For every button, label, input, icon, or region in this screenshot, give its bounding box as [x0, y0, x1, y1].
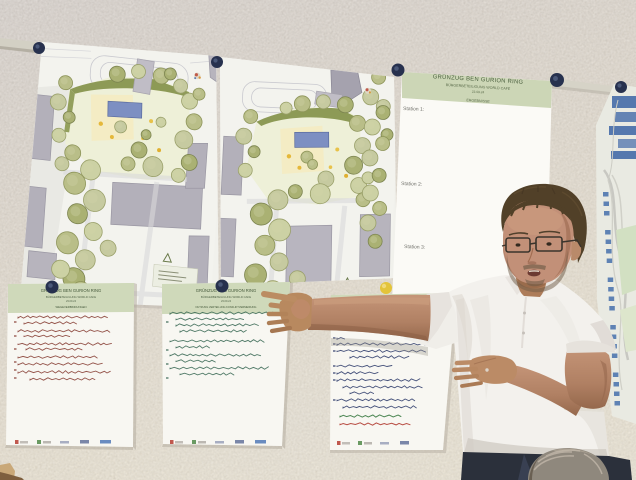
svg-text:Station 2:: Station 2:	[401, 181, 422, 188]
svg-text:Station 1:: Station 1:	[403, 106, 424, 113]
svg-text:BÜRGERBETEILIGUNG WORLD CAFE: BÜRGERBETEILIGUNG WORLD CAFE	[201, 295, 251, 299]
svg-text:23.09.24: 23.09.24	[66, 299, 77, 303]
svg-text:Station 3:: Station 3:	[404, 244, 425, 251]
svg-text:23.09.24: 23.09.24	[221, 299, 232, 303]
svg-text:NUTZUNG VERTEILUNG KONFLIKTVER: NUTZUNG VERTEILUNG KONFLIKTVERMEIDUNG	[196, 305, 257, 309]
svg-text:WEGEVERBINDUNGEN: WEGEVERBINDUNGEN	[55, 305, 86, 309]
svg-text:BÜRGERBETEILIGUNG WORLD CAFE: BÜRGERBETEILIGUNG WORLD CAFE	[46, 295, 96, 299]
svg-text:23.09.24: 23.09.24	[472, 90, 485, 95]
